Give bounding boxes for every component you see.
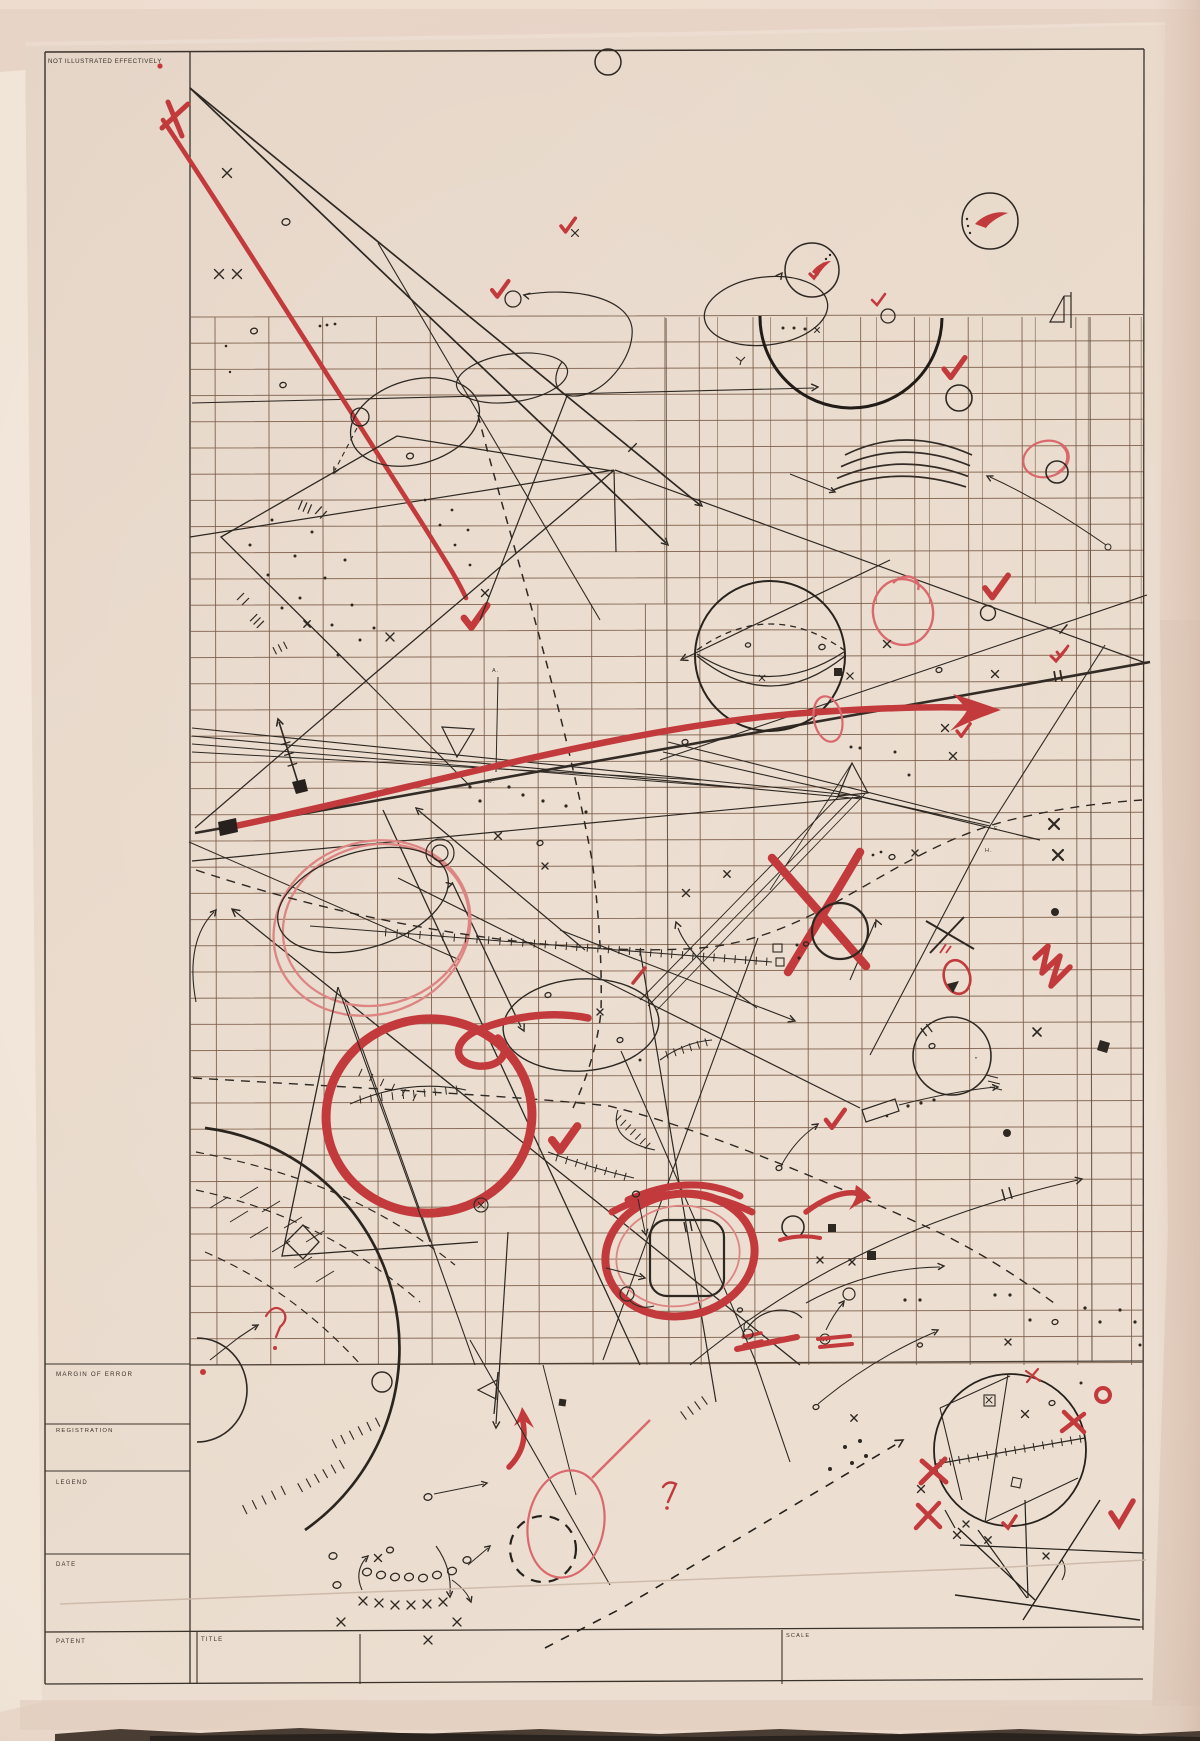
svg-text:SCALE: SCALE	[786, 1633, 810, 1639]
svg-text:NOT ILLUSTRATED EFFECTIVELY: NOT ILLUSTRATED EFFECTIVELY	[48, 58, 162, 65]
svg-text:B.: B.	[488, 779, 496, 785]
svg-text:DATE: DATE	[56, 1562, 76, 1568]
svg-text:REGISTRATION: REGISTRATION	[56, 1428, 113, 1434]
svg-text:A.: A.	[492, 668, 500, 674]
svg-text:PATENT: PATENT	[56, 1639, 86, 1645]
svg-text:LEGEND: LEGEND	[56, 1480, 88, 1486]
svg-text:”: ”	[975, 1057, 979, 1064]
svg-text:TITLE: TITLE	[201, 1637, 223, 1643]
svg-text:MARGIN OF ERROR: MARGIN OF ERROR	[56, 1371, 133, 1378]
svg-text:E.: E.	[994, 826, 1002, 832]
svg-text:H.: H.	[985, 848, 993, 854]
